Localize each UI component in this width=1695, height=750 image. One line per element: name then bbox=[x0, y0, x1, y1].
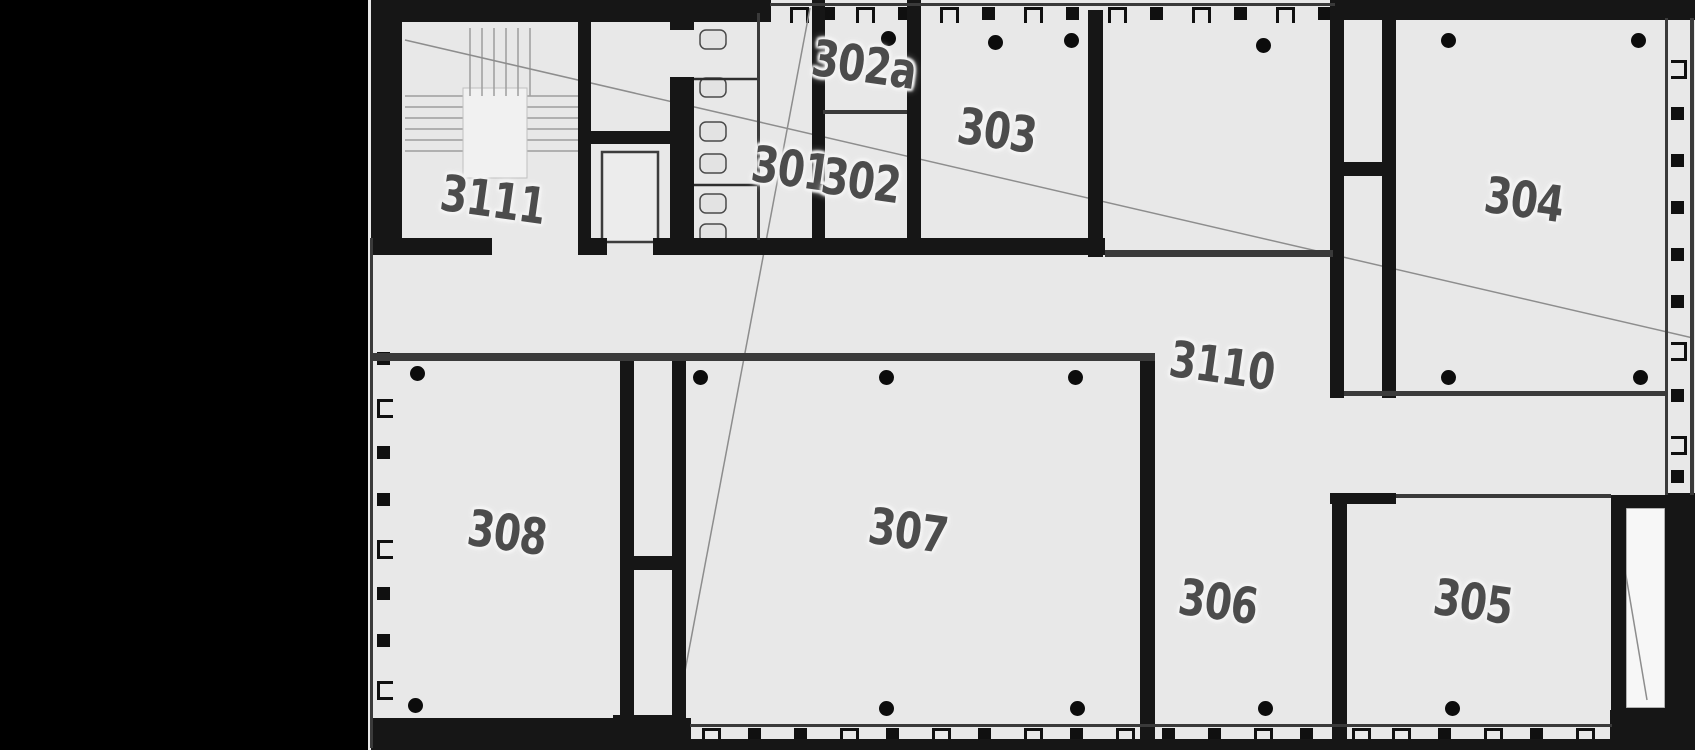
room-label-308: 308 bbox=[464, 499, 550, 567]
room-label-304: 304 bbox=[1481, 166, 1567, 234]
room-label-302a: 302a bbox=[808, 29, 920, 101]
floor-plan: 3111301302302a3033043110308307306305 bbox=[0, 0, 1695, 750]
room-label-302: 302 bbox=[818, 147, 904, 215]
room-label-307: 307 bbox=[865, 497, 951, 565]
room-label-3111: 3111 bbox=[437, 164, 549, 236]
room-label-305: 305 bbox=[1430, 568, 1516, 636]
room-label-3110: 3110 bbox=[1166, 330, 1278, 402]
room-labels-layer: 3111301302302a3033043110308307306305 bbox=[0, 0, 1695, 750]
room-label-303: 303 bbox=[954, 97, 1040, 165]
room-label-306: 306 bbox=[1175, 568, 1261, 636]
